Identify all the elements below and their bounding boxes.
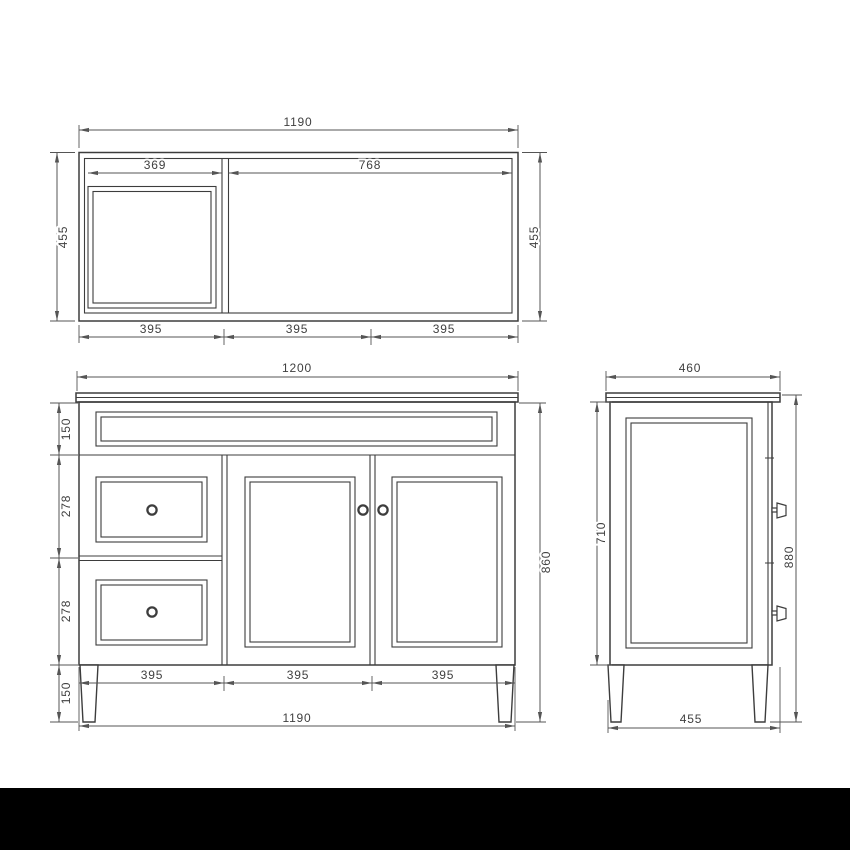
dim-label-leg-height: 150 <box>59 682 73 704</box>
dim-label-top-seg2: 395 <box>286 322 308 336</box>
dim-label-side-depth: 460 <box>679 361 701 375</box>
side-handle-upper <box>772 503 786 518</box>
dim-label-front-top-width: 1200 <box>282 361 312 375</box>
side-leg-back <box>752 665 768 722</box>
dim-label-front-overall-height: 860 <box>539 551 553 573</box>
technical-drawing-canvas: 1190 369 768 455 455 395 395 395 <box>0 0 850 850</box>
front-door-left-panel-inner <box>250 482 350 642</box>
handle-cap-icon <box>777 503 786 518</box>
top-view-outer-outline <box>79 153 518 322</box>
front-drawer-divider <box>79 556 222 561</box>
front-door-divider <box>370 455 375 665</box>
side-handle-lower <box>772 606 786 621</box>
front-view: 1200 150 278 278 150 860 395 395 395 119… <box>50 361 553 731</box>
top-view-carcass <box>79 153 518 322</box>
side-panel-outer <box>626 418 752 648</box>
copyright-footer-bar: Copyright @ 2025 My Depot Australia. Thi… <box>0 788 850 850</box>
top-view-inner-outline <box>85 159 513 314</box>
front-leg-left <box>80 665 98 722</box>
side-carcass-outline <box>610 402 772 665</box>
top-view-divider <box>222 159 229 314</box>
door-left-knob-icon <box>358 505 367 514</box>
dim-label-top-seg3: 395 <box>433 322 455 336</box>
dim-label-drawer-upper-height: 278 <box>59 495 73 517</box>
front-door-left-panel-outer <box>245 477 355 647</box>
drawer-upper-knob-icon <box>147 505 156 514</box>
dim-label-front-base-width: 1190 <box>282 711 311 725</box>
top-view-dimensions: 1190 369 768 455 455 395 395 395 <box>50 115 547 345</box>
front-drawer-door-divider <box>222 455 227 665</box>
handle-stem-icon <box>772 508 777 512</box>
dim-label-opening-left: 369 <box>144 158 166 172</box>
top-view-drawer-box-inner <box>93 192 211 304</box>
dim-label-top-seg1: 395 <box>140 322 162 336</box>
top-view-drawer-box-outer <box>88 187 216 309</box>
dim-label-top-total-width: 1190 <box>283 115 312 129</box>
dim-label-depth-left: 455 <box>56 226 70 248</box>
dim-label-front-seg1: 395 <box>141 668 163 682</box>
dim-label-front-seg2: 395 <box>287 668 309 682</box>
dim-label-top-rail-height: 150 <box>59 418 73 440</box>
dim-label-side-body-height: 710 <box>594 522 608 544</box>
drawer-lower-knob-icon <box>147 607 156 616</box>
front-left-extension-ticks <box>50 403 78 722</box>
dim-label-depth-right: 455 <box>527 226 541 248</box>
handle-stem-icon <box>772 611 777 615</box>
side-view: 460 710 880 455 <box>590 361 802 733</box>
top-view: 1190 369 768 455 455 395 395 395 <box>50 115 547 345</box>
side-panel-inner <box>631 423 747 643</box>
dim-label-side-overall-height: 880 <box>782 546 796 568</box>
side-view-cabinet <box>606 393 786 722</box>
front-top-rail-panel-inner <box>101 417 492 441</box>
side-leg-front <box>608 665 624 722</box>
front-door-right-panel-inner <box>397 482 497 642</box>
dim-label-opening-right: 768 <box>359 158 381 172</box>
cad-drawing-page: 1190 369 768 455 455 395 395 395 <box>0 0 850 850</box>
dim-label-drawer-lower-height: 278 <box>59 600 73 622</box>
front-leg-right <box>496 665 514 722</box>
handle-cap-icon <box>777 606 786 621</box>
front-door-right-panel-outer <box>392 477 502 647</box>
door-right-knob-icon <box>378 505 387 514</box>
dim-label-front-seg3: 395 <box>432 668 454 682</box>
dim-label-side-base-depth: 455 <box>680 712 702 726</box>
